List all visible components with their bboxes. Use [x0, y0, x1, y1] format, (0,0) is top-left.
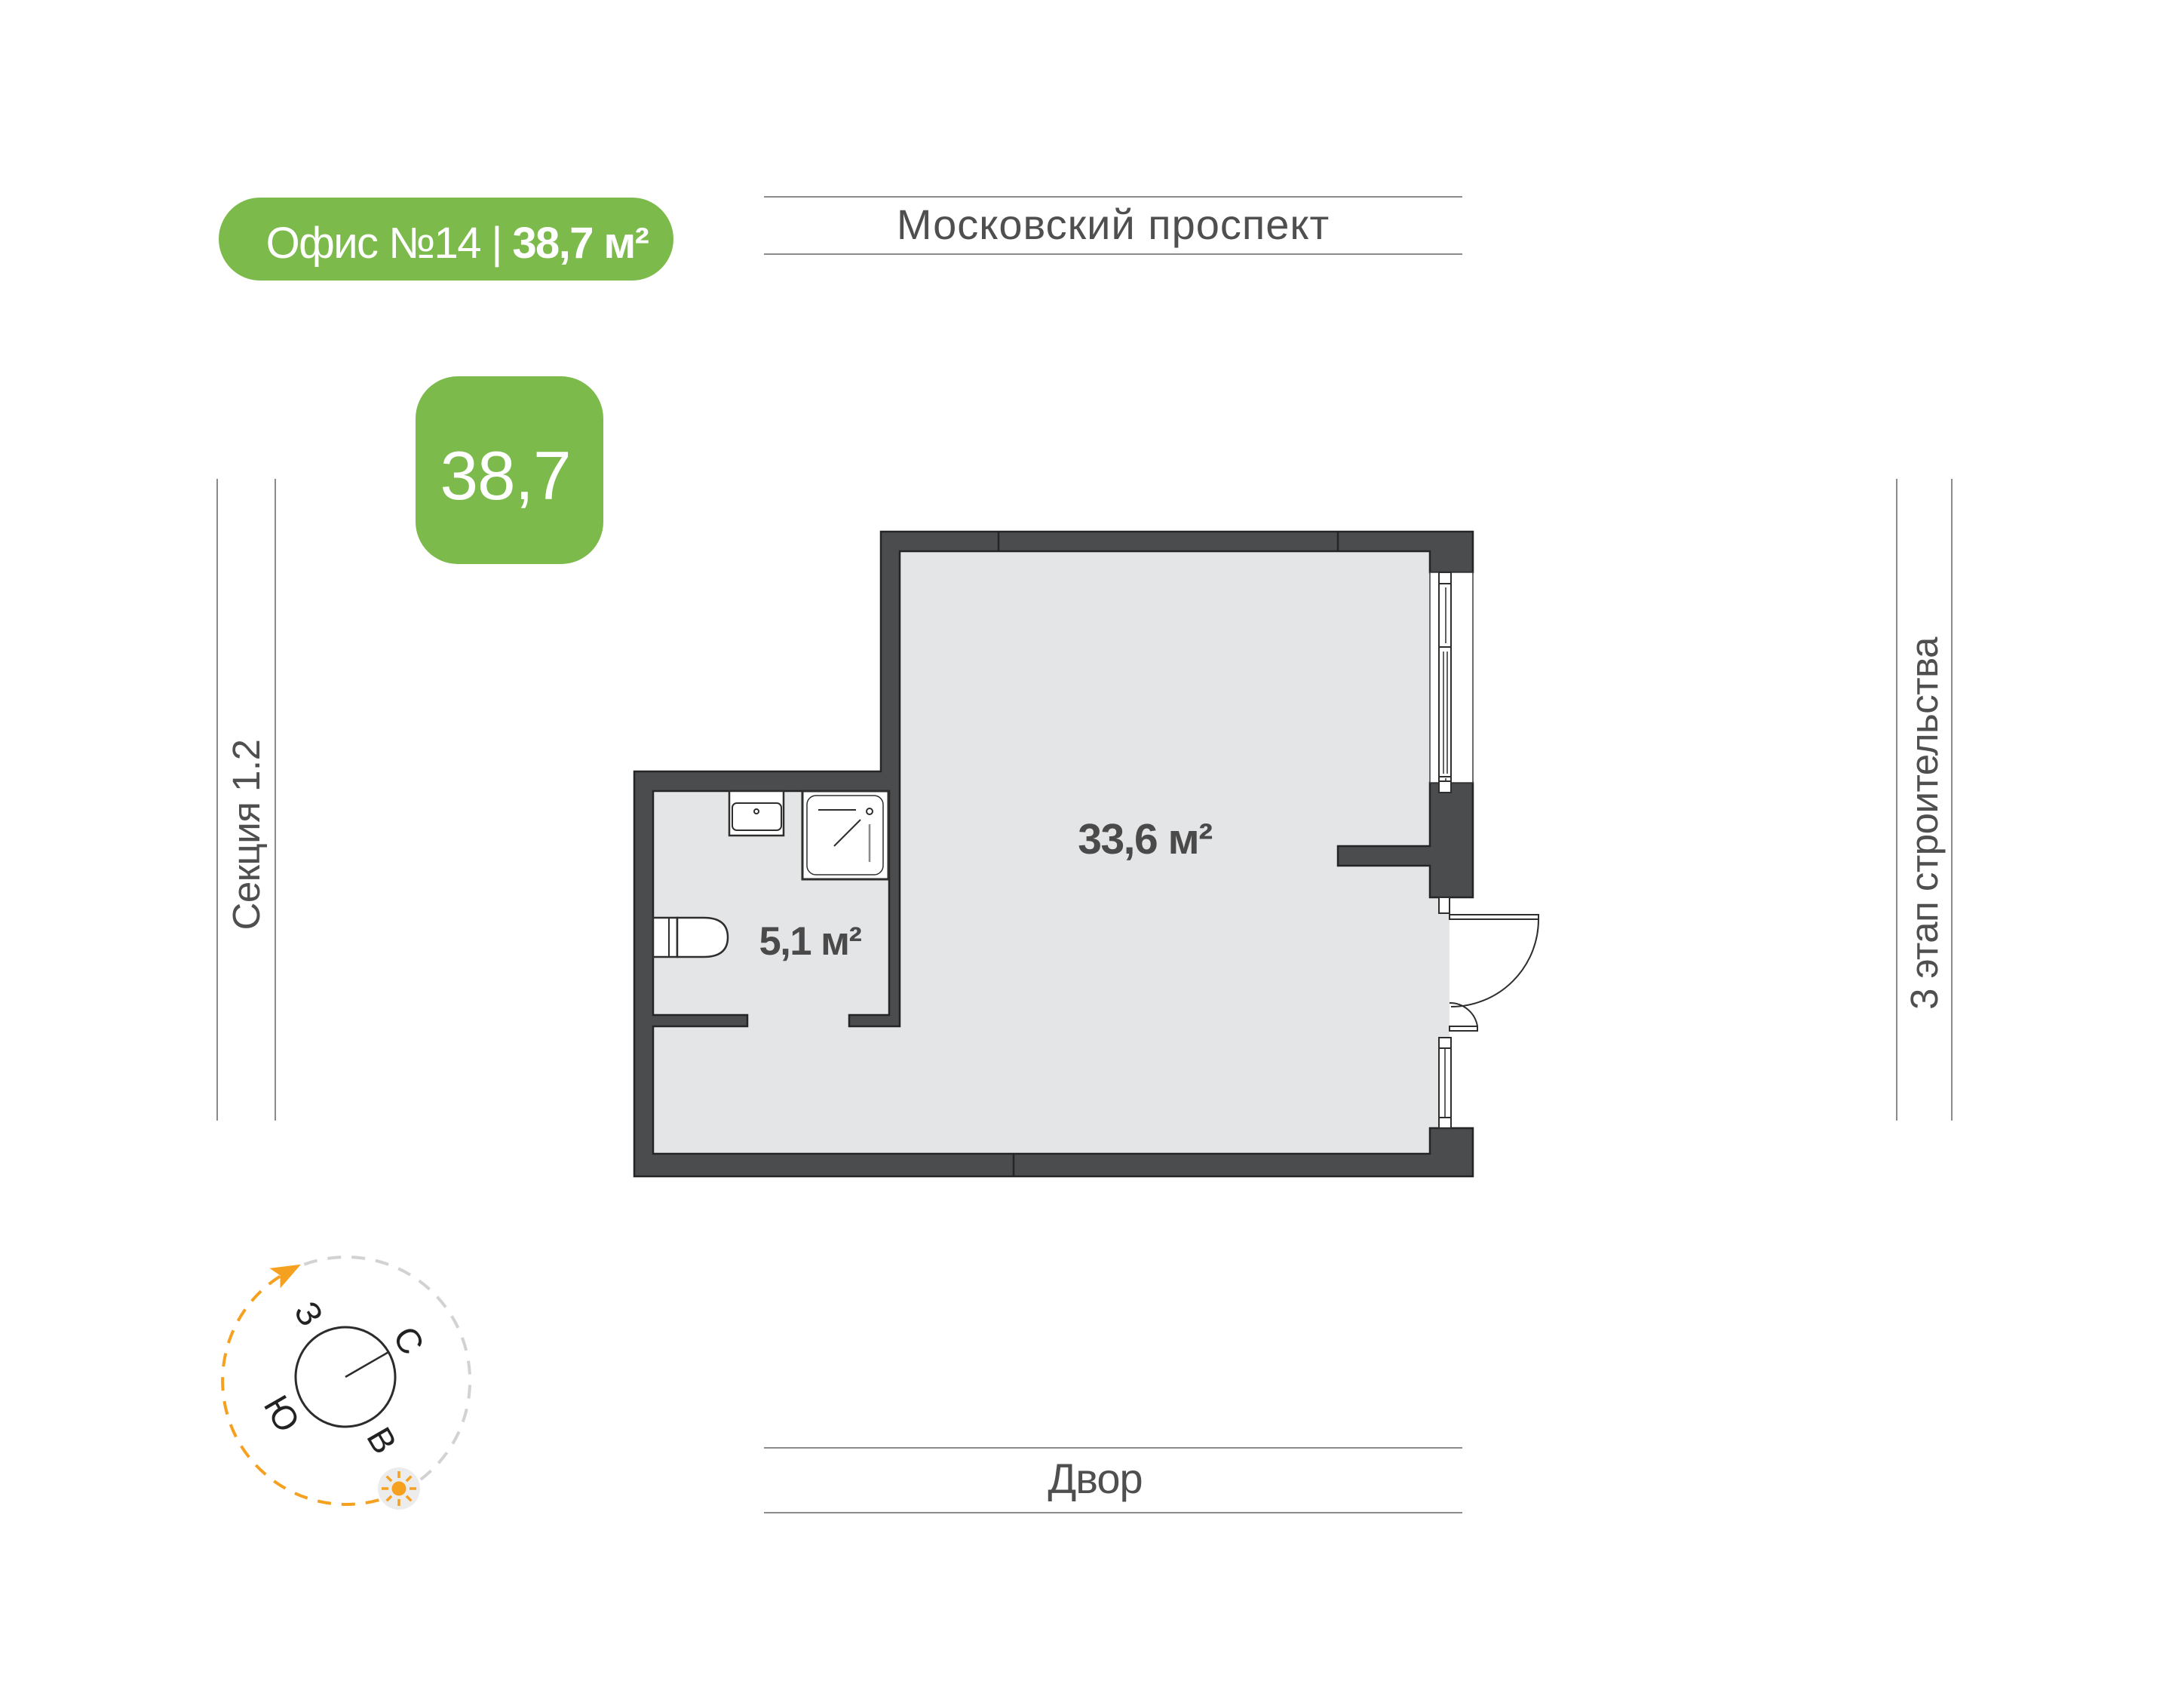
- svg-text:Офис №14 | 38,7 м²: Офис №14 | 38,7 м²: [266, 219, 649, 268]
- svg-text:Московский проспект: Московский проспект: [897, 201, 1330, 248]
- svg-text:38,7: 38,7: [440, 438, 570, 514]
- svg-text:Секция 1.2: Секция 1.2: [225, 740, 268, 931]
- svg-text:Двор: Двор: [1048, 1455, 1142, 1502]
- svg-text:3 этап строительства: 3 этап строительства: [1903, 636, 1946, 1010]
- svg-text:33,6 м²: 33,6 м²: [1078, 815, 1212, 863]
- svg-text:5,1 м²: 5,1 м²: [759, 919, 862, 964]
